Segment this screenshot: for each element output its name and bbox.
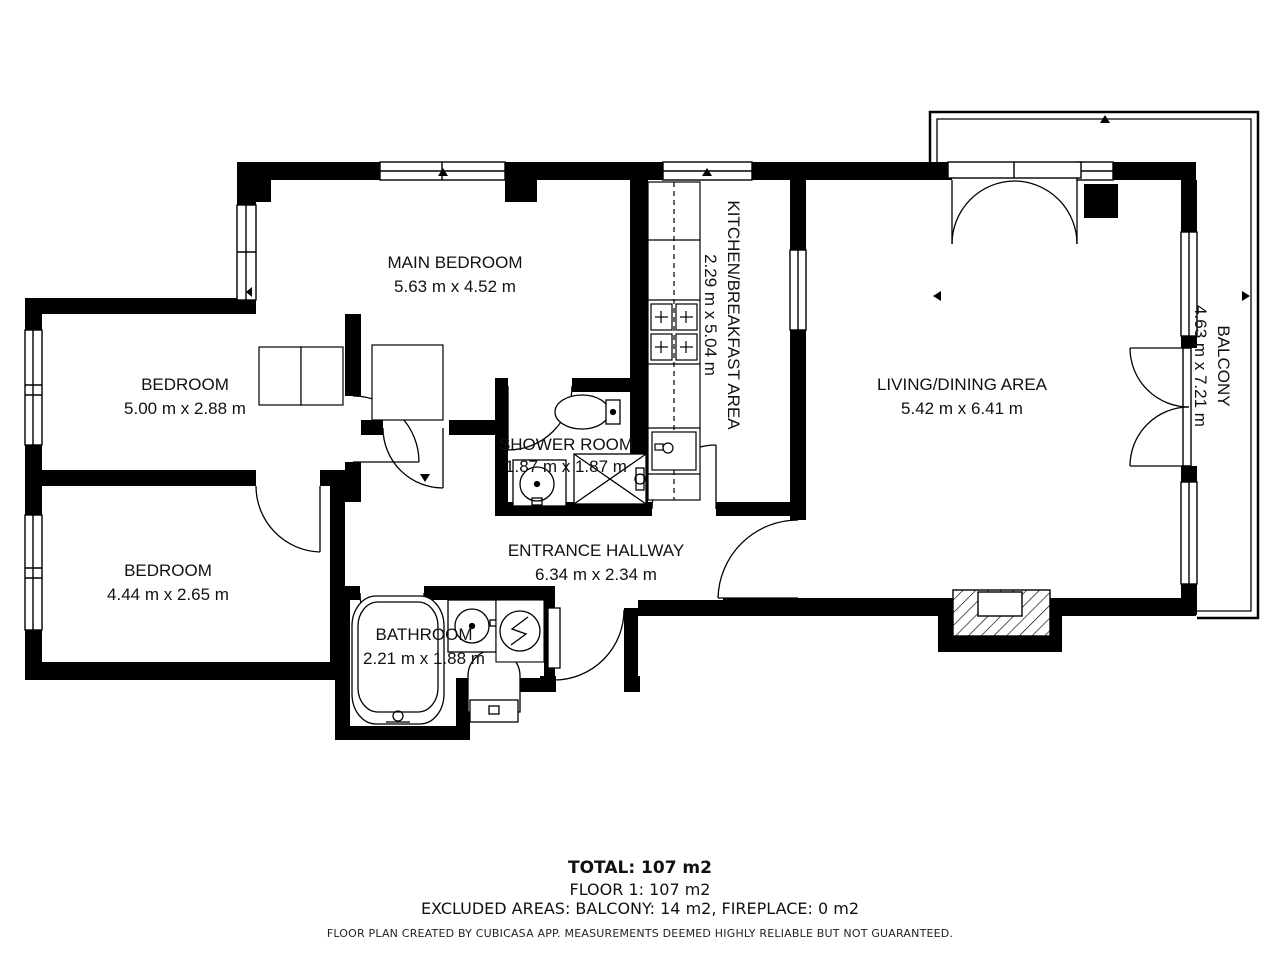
room-name: KITCHEN/BREAKFAST AREA (724, 200, 743, 430)
room-dimensions: 5.63 m x 4.52 m (394, 277, 516, 296)
column (1084, 184, 1118, 218)
folding-doors (952, 180, 1077, 244)
door-arc (383, 428, 443, 488)
room-name: BEDROOM (124, 561, 212, 580)
room-label-kitchen: KITCHEN/BREAKFAST AREA 2.29 m x 5.04 m (701, 200, 743, 430)
fireplace (953, 590, 1050, 636)
room-name: BATHROOM (376, 625, 473, 644)
wardrobe (259, 347, 343, 405)
window (237, 205, 256, 300)
room-label-bedroom-1: BEDROOM 5.00 m x 2.88 m (124, 375, 246, 418)
floor-plan-page: MAIN BEDROOM 5.63 m x 4.52 m BEDROOM 5.0… (0, 0, 1280, 960)
room-name: BEDROOM (141, 375, 229, 394)
measure-arrow (420, 474, 430, 482)
room-label-balcony: BALCONY 4.63 m x 7.21 m (1191, 305, 1233, 427)
door-arc (718, 520, 798, 598)
folding-door-frame (948, 162, 1081, 178)
measure-arrow (933, 291, 941, 301)
room-name: SHOWER ROOM (499, 435, 633, 454)
measure-arrow (1242, 291, 1250, 301)
room-dimensions: 2.21 m x 1.88 m (363, 649, 485, 668)
water-heater (496, 600, 544, 662)
excluded-areas-label: EXCLUDED AREAS: BALCONY: 14 m2, FIREPLAC… (0, 899, 1280, 918)
window (790, 250, 806, 330)
french-doors (1130, 348, 1189, 466)
floor-area-label: FLOOR 1: 107 m2 (0, 880, 1280, 899)
window (1181, 482, 1197, 584)
total-area-label: TOTAL: 107 m2 (0, 858, 1280, 878)
room-name: MAIN BEDROOM (387, 253, 522, 272)
kitchen-sink (652, 432, 696, 470)
window (1077, 162, 1113, 180)
room-name: BALCONY (1214, 325, 1233, 406)
room-dimensions: 6.34 m x 2.34 m (535, 565, 657, 584)
room-dimensions: 5.42 m x 6.41 m (901, 399, 1023, 418)
entrance-door (548, 608, 624, 680)
wardrobe (372, 345, 443, 420)
disclaimer-text: FLOOR PLAN CREATED BY CUBICASA APP. MEAS… (0, 927, 1280, 940)
room-name: LIVING/DINING AREA (877, 375, 1048, 394)
room-label-entrance-hallway: ENTRANCE HALLWAY 6.34 m x 2.34 m (508, 541, 684, 584)
room-label-living-dining: LIVING/DINING AREA 5.42 m x 6.41 m (877, 375, 1048, 418)
window (25, 515, 42, 630)
floor-plan-drawing: MAIN BEDROOM 5.63 m x 4.52 m BEDROOM 5.0… (0, 0, 1280, 960)
room-dimensions: 4.44 m x 2.65 m (107, 585, 229, 604)
room-dimensions: 2.29 m x 5.04 m (701, 254, 720, 376)
window (25, 330, 42, 445)
door-arc (256, 486, 320, 552)
room-label-bedroom-2: BEDROOM 4.44 m x 2.65 m (107, 561, 229, 604)
room-dimensions: 1.87 m x 1.87 m (505, 457, 627, 476)
room-dimensions: 5.00 m x 2.88 m (124, 399, 246, 418)
room-name: ENTRANCE HALLWAY (508, 541, 684, 560)
toilet (555, 395, 620, 429)
room-label-main-bedroom: MAIN BEDROOM 5.63 m x 4.52 m (387, 253, 522, 296)
room-dimensions: 4.63 m x 7.21 m (1191, 305, 1210, 427)
